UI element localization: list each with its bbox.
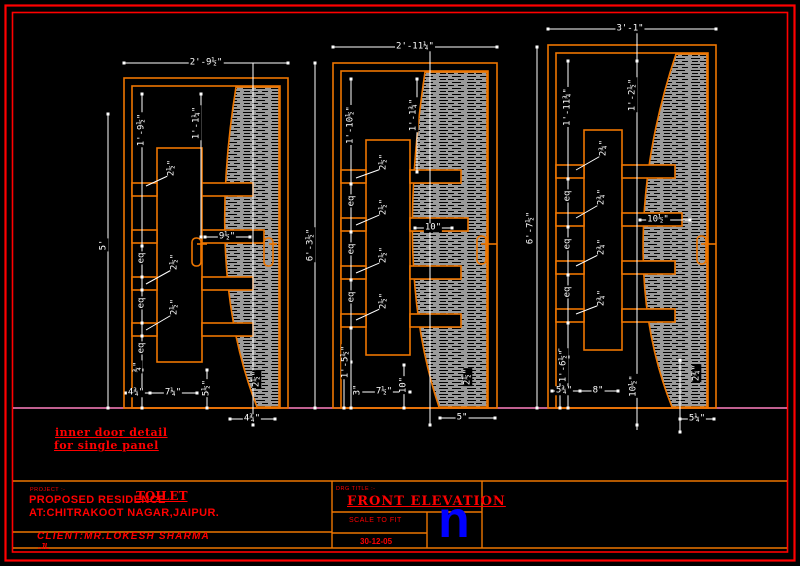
door-elevation-2 (332, 46, 539, 427)
dim-door1-rail-1: 2½" (167, 159, 176, 177)
dim-door1-width: 2'-9½" (189, 58, 224, 67)
dim-door3-panel-top: 1'-2½" (628, 78, 637, 113)
dim-door3-width: 3'-1" (615, 24, 644, 33)
scale-label: SCALE TO FIT (349, 517, 402, 524)
dim-door1-bottom-c: 5½" (202, 379, 211, 397)
client-name: CLIENT:MR.LOKESH SHARMA (37, 531, 210, 542)
dim-door1-eq-3: eq (137, 342, 146, 355)
client-initials: .JL (38, 542, 50, 551)
drawing-title: FRONT ELEVATION (347, 494, 506, 509)
dim-door1-panel-top: 1'-1¼" (192, 106, 201, 141)
note-line-1: inner door detail (55, 426, 168, 439)
project-address: AT:CHITRAKOOT NAGAR,JAIPUR. (29, 507, 219, 519)
dim-door2-hatch: 2½" (463, 368, 472, 386)
dim-door1-rail-2: 2½" (170, 253, 179, 271)
dim-door3-bottom-c: 8" (592, 386, 605, 395)
dim-door3-bottom-a: 1'-6½" (559, 349, 568, 384)
logo-n: n (438, 498, 470, 542)
dim-door2-panel-top: 1'-1¾" (409, 98, 418, 133)
dim-door2-stile-height: 1'-10½" (346, 105, 355, 145)
dim-door2-width: 2'-11¼" (395, 42, 435, 51)
dim-door1-under: 4¾" (243, 414, 261, 423)
dim-door2-rail-length: 10" (424, 223, 442, 232)
project-label: PROJECT :- (30, 487, 65, 493)
project-overlay-toilet: TOILET (136, 489, 188, 503)
dim-door1-bottom-a: 4¾" (127, 388, 145, 397)
dim-door3-rail-2: 2¾" (597, 188, 606, 206)
dim-door3-bottom-d: 10½" (629, 374, 638, 398)
dim-door2-eq-1: eq (347, 195, 356, 208)
dim-door1-right-height: 6'-3½" (306, 228, 315, 263)
elevation-drawing: .o{stroke:#ee7600;stroke-width:1.6;fill:… (0, 0, 800, 566)
dim-door3-under: 5¼" (688, 414, 706, 423)
dim-door2-eq-2: eq (347, 243, 356, 256)
cad-sheet: .o{stroke:#ee7600;stroke-width:1.6;fill:… (0, 0, 800, 566)
dim-door3-bottom-b: 5¾" (555, 386, 573, 395)
dim-door3-rail-length: 10½" (646, 215, 670, 224)
dim-door1-rail-length: 9½" (218, 232, 236, 241)
dim-door3-eq-1: eq (563, 190, 572, 203)
dim-door1-bottom-b: 7¼" (164, 388, 182, 397)
dim-door2-bottom-a: 1'-5½" (341, 345, 350, 380)
dim-door3-rail-3: 2¾" (597, 238, 606, 256)
dim-door2-rail-3: 2½" (379, 246, 388, 264)
dim-door2-rail-1: 2½" (379, 153, 388, 171)
note-line-2: for single panel (54, 439, 159, 452)
dim-door1-eq-2: eq (137, 297, 146, 310)
dim-door2-bottom-b: 3" (353, 384, 362, 397)
dim-door3-hatch: 2¾" (692, 364, 701, 382)
dim-door1-stile-height: 1'-9½" (137, 113, 146, 148)
drg-title-label: DRG TITLE :- (336, 486, 376, 492)
dim-door2-bottom-d: 10" (399, 376, 408, 394)
dim-door2-bottom-c: 7½" (375, 387, 393, 396)
dim-door1-hatch: 2½" (252, 370, 261, 388)
dim-door1-bottom-stile: ¾" (133, 361, 142, 374)
dim-door3-rail-1: 2¾" (599, 139, 608, 157)
dim-door3-stile-height: 1'-11¾" (563, 87, 572, 127)
date-label: 30-12-05 (360, 537, 392, 546)
dim-door1-left-height: 5' (99, 239, 108, 252)
dim-door3-eq-3: eq (563, 286, 572, 299)
dim-door2-under: 5" (456, 413, 469, 422)
dim-door1-rail-3: 2½" (170, 298, 179, 316)
dim-door1-eq-1: eq (137, 252, 146, 265)
dim-door2-right-height: 6'-7½" (526, 211, 535, 246)
dim-door2-rail-2: 2½" (379, 198, 388, 216)
dim-door3-eq-2: eq (563, 238, 572, 251)
dim-door3-rail-4: 2¾" (597, 289, 606, 307)
dim-door2-rail-4: 2½" (379, 292, 388, 310)
dim-door2-eq-3: eq (347, 291, 356, 304)
